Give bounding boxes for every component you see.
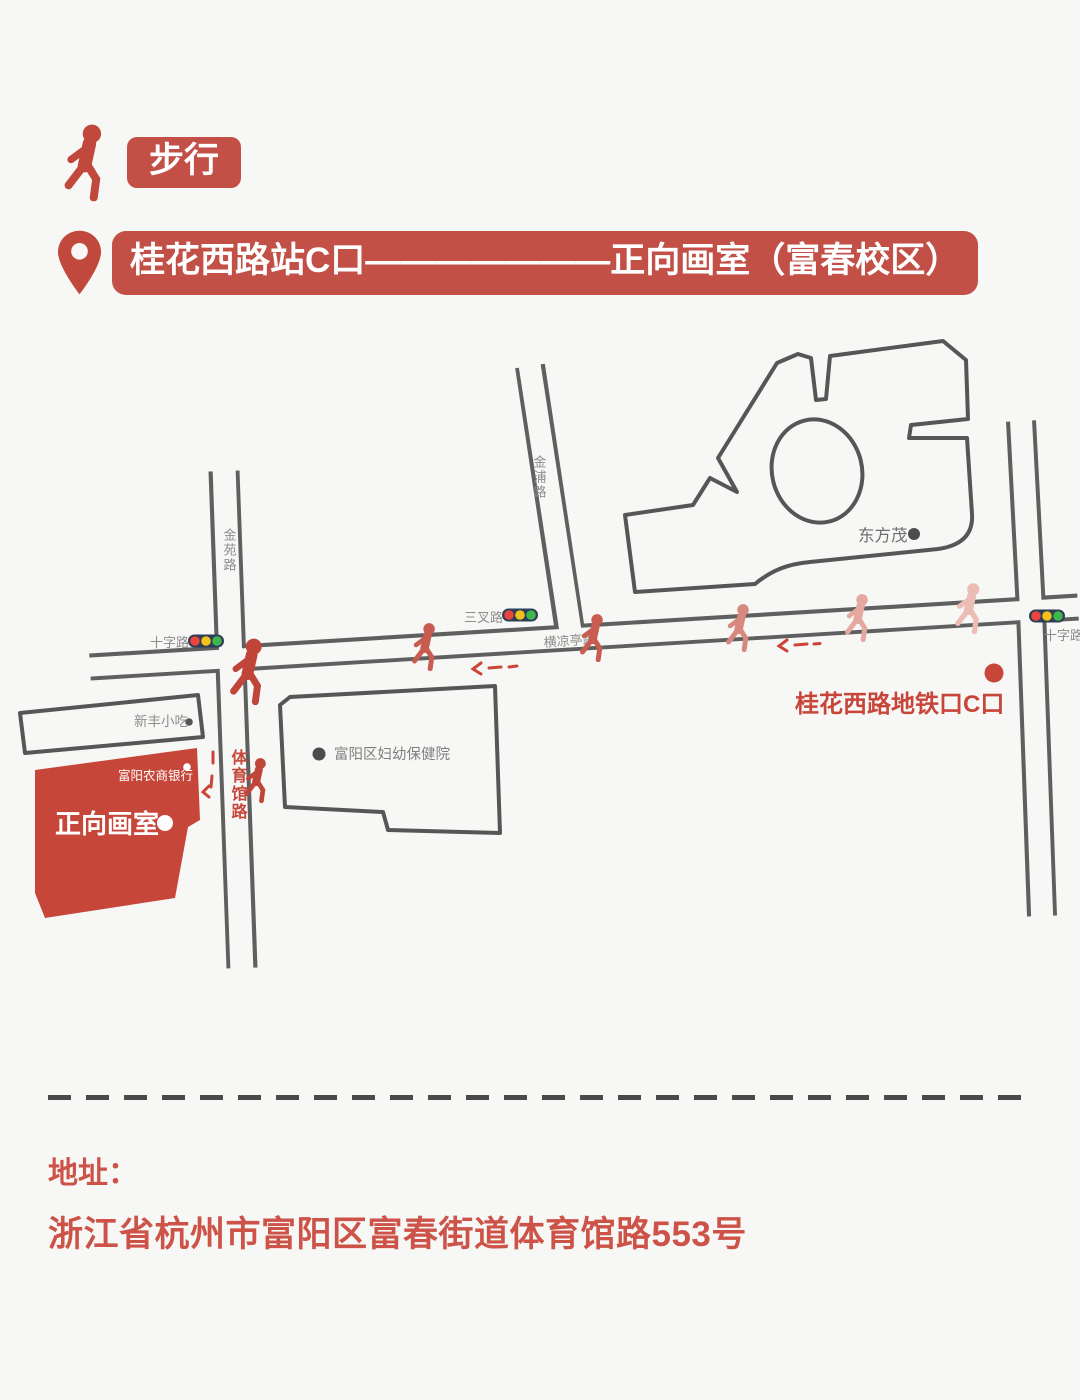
- dongfangmao-atrium: [761, 410, 873, 533]
- arrow-left-icon: [473, 663, 481, 674]
- route-map: 金苑路 金浦路 十字路 三叉路 横凉亭路 十字路 体育馆路 东方茂 新丰小吃 富…: [0, 0, 1080, 1400]
- dongfangmao-building: [625, 341, 972, 592]
- label-sancha-junction: 三叉路: [464, 610, 503, 625]
- label-jinpu-road: 金浦路: [532, 454, 547, 500]
- label-bank: 富阳农商银行: [118, 768, 193, 783]
- label-crossroad-left: 十字路: [150, 635, 189, 650]
- label-studio: 正向画室: [55, 809, 159, 839]
- address-text: 浙江省杭州市富阳区富春街道体育馆路553号: [48, 1206, 747, 1257]
- traffic-light-crossroad-right: [1029, 610, 1065, 623]
- label-hospital: 富阳区妇幼保健院: [334, 745, 450, 763]
- traffic-light-crossroad-left: [188, 635, 224, 648]
- metro-exit-dot: [985, 664, 1004, 683]
- traffic-light-sancha: [502, 609, 538, 622]
- dashed-divider: [48, 1095, 1035, 1100]
- arrow-left-icon: [779, 640, 787, 651]
- label-dongfangmao: 东方茂: [858, 526, 908, 545]
- label-metro-exit: 桂花西路地铁口C口: [795, 690, 1004, 718]
- address-label: 地址：: [48, 1148, 138, 1192]
- studio-dot: [157, 815, 173, 831]
- arrow-turn-icon: [203, 786, 209, 797]
- label-jinyuan-road: 金苑路: [222, 527, 237, 573]
- label-tiyuguan-road: 体育馆路: [229, 748, 248, 821]
- label-xinfeng-snacks: 新丰小吃: [134, 714, 188, 729]
- label-crossroad-right: 十字路: [1044, 628, 1080, 643]
- dongfangmao-dot: [908, 528, 920, 540]
- hospital-dot: [313, 748, 326, 761]
